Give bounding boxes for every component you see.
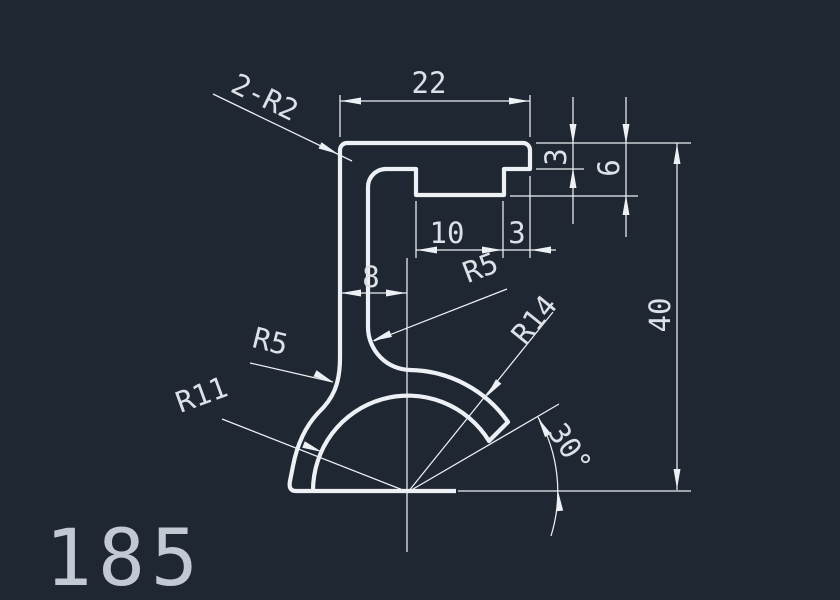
hook-inner-radius-label: R11 [171, 370, 232, 420]
leader-line [374, 289, 507, 341]
profile-outline [290, 143, 530, 491]
dim-web-offset-label: 8 [362, 260, 379, 294]
dim-rib-width-label: 10 [430, 216, 465, 250]
dim-web-offset: 8 [341, 260, 407, 297]
dim-flange-thickness: 3 [539, 97, 576, 224]
foot-radius-label: R5 [249, 321, 291, 362]
web-inner-radius-label: R5 [458, 246, 503, 290]
leader-corner-radius: 2-R2 [213, 67, 352, 161]
profile-path [290, 143, 530, 491]
dim-top-width: 22 [340, 66, 530, 137]
dim-height: 40 [643, 143, 680, 490]
dim-top-width-label: 22 [412, 66, 447, 100]
leader-foot-radius: R5 [249, 321, 333, 382]
dim-rib-depth-label: 6 [592, 159, 626, 176]
cad-drawing-viewport: 22 3 6 40 10 3 8 30° [0, 0, 840, 600]
dim-rib-offset-label: 3 [508, 216, 525, 250]
dim-flange-thickness-label: 3 [539, 148, 573, 165]
hook-outer-radius-label: R14 [505, 289, 564, 351]
arrowhead [486, 379, 501, 397]
angle-ray [408, 404, 559, 492]
arrowhead [531, 247, 551, 254]
arrowhead [372, 330, 392, 341]
arrowhead [302, 441, 322, 452]
arrowhead [319, 142, 339, 154]
leader-line [250, 363, 333, 382]
dim-height-label: 40 [643, 298, 677, 333]
dim-angle-label: 30° [541, 417, 598, 479]
dim-rib-depth: 6 [592, 97, 629, 237]
cad-drawing: 22 3 6 40 10 3 8 30° [0, 0, 840, 600]
part-number: 185 [45, 514, 204, 600]
